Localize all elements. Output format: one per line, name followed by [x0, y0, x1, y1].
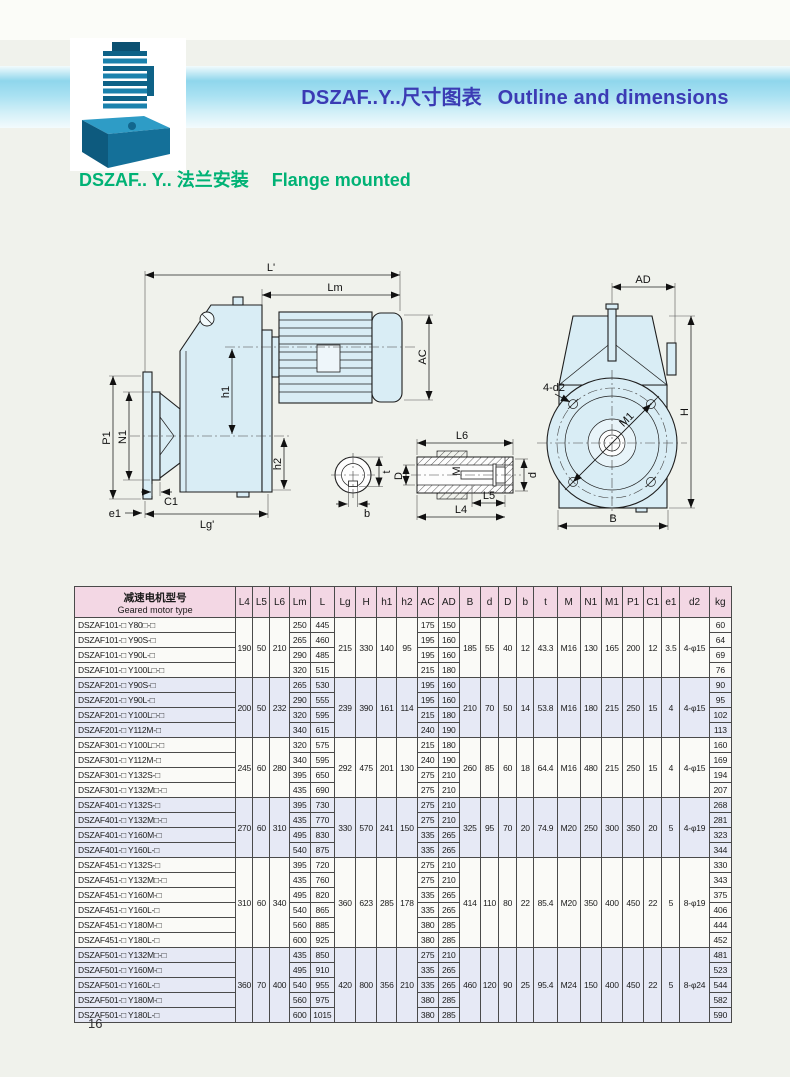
b-cell: 14 — [517, 678, 534, 738]
dim-label-d: d — [527, 472, 539, 478]
B-cell: 460 — [459, 948, 480, 1023]
col-header-AD: AD — [438, 587, 459, 618]
model-cell: DSZAF301-□ Y132S-□ — [75, 768, 236, 783]
h2-cell: 178 — [397, 858, 417, 948]
table-header-row: 减速电机型号 Geared motor type L4 L5 L6 Lm L L… — [75, 587, 732, 618]
kg-cell: 481 — [709, 948, 731, 963]
model-cell: DSZAF401-□ Y160M-□ — [75, 828, 236, 843]
Lm-cell: 320 — [289, 708, 310, 723]
dim-label-b: b — [364, 508, 370, 520]
L5-cell: 60 — [253, 858, 270, 948]
L-cell: 975 — [310, 993, 334, 1008]
model-header-zh: 减速电机型号 — [75, 590, 235, 605]
page-title-en: Outline and dimensions — [498, 87, 729, 109]
model-cell: DSZAF451-□ Y160L-□ — [75, 903, 236, 918]
kg-cell: 95 — [709, 693, 731, 708]
dim-label-L6: L6 — [456, 430, 468, 442]
dim-label-AC: AC — [417, 349, 429, 364]
Lm-cell: 340 — [289, 723, 310, 738]
Lm-cell: 395 — [289, 768, 310, 783]
L-cell: 1015 — [310, 1008, 334, 1023]
d2-cell: 4-φ15 — [680, 738, 709, 798]
col-header-B: B — [459, 587, 480, 618]
product-photo — [70, 38, 186, 171]
L-cell: 595 — [310, 753, 334, 768]
N1-cell: 250 — [580, 798, 601, 858]
Lm-cell: 540 — [289, 903, 310, 918]
model-cell: DSZAF451-□ Y180M-□ — [75, 918, 236, 933]
t-cell: 74.9 — [534, 798, 557, 858]
L4-cell: 270 — [236, 798, 253, 858]
h2-cell: 114 — [397, 678, 417, 738]
e1-cell: 4 — [662, 738, 680, 798]
t-cell: 85.4 — [534, 858, 557, 948]
kg-cell: 160 — [709, 738, 731, 753]
AD-cell: 180 — [438, 708, 459, 723]
L5-cell: 50 — [253, 678, 270, 738]
kg-cell: 64 — [709, 633, 731, 648]
L-cell: 925 — [310, 933, 334, 948]
kg-cell: 323 — [709, 828, 731, 843]
C1-cell: 20 — [644, 798, 662, 858]
kg-cell: 90 — [709, 678, 731, 693]
AC-cell: 335 — [417, 843, 438, 858]
dim-label-B: B — [609, 513, 616, 525]
L6-cell: 280 — [270, 738, 289, 798]
AD-cell: 210 — [438, 948, 459, 963]
M-cell: M16 — [557, 618, 580, 678]
model-header-en: Geared motor type — [75, 605, 235, 615]
model-cell: DSZAF501-□ Y160M-□ — [75, 963, 236, 978]
AD-cell: 160 — [438, 693, 459, 708]
catalog-page: DSZAF..Y..尺寸图表 Outline and dimensions DS… — [0, 0, 790, 1077]
AD-cell: 285 — [438, 918, 459, 933]
AC-cell: 380 — [417, 993, 438, 1008]
table-row: DSZAF501-□ Y132M□-□360704004358504208003… — [75, 948, 732, 963]
kg-cell: 76 — [709, 663, 731, 678]
t-cell: 53.8 — [534, 678, 557, 738]
col-header-L5: L5 — [253, 587, 270, 618]
L4-cell: 245 — [236, 738, 253, 798]
table-row: DSZAF301-□ Y100L□-□245602803205752924752… — [75, 738, 732, 753]
C1-cell: 15 — [644, 738, 662, 798]
b-cell: 18 — [517, 738, 534, 798]
dim-label-Lg-prime: Lg' — [200, 519, 214, 531]
col-header-N1: N1 — [580, 587, 601, 618]
L-cell: 690 — [310, 783, 334, 798]
kg-cell: 375 — [709, 888, 731, 903]
B-cell: 260 — [459, 738, 480, 798]
M-cell: M20 — [557, 858, 580, 948]
dim-label-AD: AD — [635, 274, 650, 286]
M-cell: M20 — [557, 798, 580, 858]
M1-cell: 215 — [601, 738, 622, 798]
dim-label-D: D — [393, 472, 405, 480]
kg-cell: 590 — [709, 1008, 731, 1023]
AD-cell: 285 — [438, 933, 459, 948]
motor-fins — [103, 51, 154, 109]
AC-cell: 335 — [417, 978, 438, 993]
AD-cell: 210 — [438, 813, 459, 828]
e1-cell: 3.5 — [662, 618, 680, 678]
Lm-cell: 265 — [289, 633, 310, 648]
dim-label-L4: L4 — [455, 504, 467, 516]
model-cell: DSZAF501-□ Y160L-□ — [75, 978, 236, 993]
AD-cell: 210 — [438, 783, 459, 798]
d-cell: 120 — [481, 948, 499, 1023]
M1-cell: 300 — [601, 798, 622, 858]
d2-cell: 8-φ19 — [680, 858, 709, 948]
D-cell: 40 — [499, 618, 517, 678]
dimension-table: 减速电机型号 Geared motor type L4 L5 L6 Lm L L… — [74, 586, 732, 1023]
AC-cell: 335 — [417, 828, 438, 843]
kg-cell: 169 — [709, 753, 731, 768]
h2-cell: 210 — [397, 948, 417, 1023]
AD-cell: 210 — [438, 798, 459, 813]
L4-cell: 310 — [236, 858, 253, 948]
kg-cell: 406 — [709, 903, 731, 918]
Lg-cell: 420 — [334, 948, 355, 1023]
AC-cell: 380 — [417, 918, 438, 933]
M-cell: M16 — [557, 678, 580, 738]
kg-cell: 344 — [709, 843, 731, 858]
Lm-cell: 495 — [289, 828, 310, 843]
model-cell: DSZAF451-□ Y132M□-□ — [75, 873, 236, 888]
kg-cell: 69 — [709, 648, 731, 663]
AD-cell: 265 — [438, 978, 459, 993]
col-header-C1: C1 — [644, 587, 662, 618]
Lm-cell: 495 — [289, 963, 310, 978]
kg-cell: 544 — [709, 978, 731, 993]
AD-cell: 160 — [438, 648, 459, 663]
Lm-cell: 540 — [289, 843, 310, 858]
AD-cell: 210 — [438, 768, 459, 783]
L-cell: 760 — [310, 873, 334, 888]
H-cell: 570 — [356, 798, 377, 858]
kg-cell: 343 — [709, 873, 731, 888]
model-cell: DSZAF301-□ Y112M-□ — [75, 753, 236, 768]
AC-cell: 240 — [417, 723, 438, 738]
subtitle-zh: DSZAF.. Y.. 法兰安装 — [79, 170, 249, 190]
gear-motor-image — [70, 38, 186, 171]
page-title: DSZAF..Y..尺寸图表 Outline and dimensions — [285, 81, 745, 110]
AC-cell: 335 — [417, 903, 438, 918]
AC-cell: 275 — [417, 948, 438, 963]
model-cell: DSZAF101-□ Y80□-□ — [75, 618, 236, 633]
col-header-L: L — [310, 587, 334, 618]
subtitle-en: Flange mounted — [272, 170, 411, 190]
N1-cell: 180 — [580, 678, 601, 738]
L-cell: 830 — [310, 828, 334, 843]
H-cell: 623 — [356, 858, 377, 948]
P1-cell: 450 — [623, 858, 644, 948]
Lm-cell: 250 — [289, 618, 310, 633]
AD-cell: 265 — [438, 828, 459, 843]
AC-cell: 275 — [417, 798, 438, 813]
d-cell: 110 — [481, 858, 499, 948]
model-cell: DSZAF101-□ Y90L-□ — [75, 648, 236, 663]
P1-cell: 250 — [623, 678, 644, 738]
L6-cell: 340 — [270, 858, 289, 948]
d2-cell: 4-φ15 — [680, 618, 709, 678]
B-cell: 414 — [459, 858, 480, 948]
kg-cell: 582 — [709, 993, 731, 1008]
Lg-cell: 360 — [334, 858, 355, 948]
b-cell: 25 — [517, 948, 534, 1023]
AD-cell: 160 — [438, 633, 459, 648]
L4-cell: 190 — [236, 618, 253, 678]
L-cell: 485 — [310, 648, 334, 663]
page-number: 16 — [88, 1016, 102, 1031]
L-cell: 910 — [310, 963, 334, 978]
b-cell: 22 — [517, 858, 534, 948]
AD-cell: 190 — [438, 723, 459, 738]
AC-cell: 175 — [417, 618, 438, 633]
M1-cell: 400 — [601, 948, 622, 1023]
AC-cell: 380 — [417, 1008, 438, 1023]
d2-cell: 4-φ19 — [680, 798, 709, 858]
h2-cell: 150 — [397, 798, 417, 858]
AD-cell: 180 — [438, 663, 459, 678]
B-cell: 210 — [459, 678, 480, 738]
AC-cell: 195 — [417, 648, 438, 663]
L-cell: 515 — [310, 663, 334, 678]
h2-cell: 130 — [397, 738, 417, 798]
AD-cell: 285 — [438, 993, 459, 1008]
L-cell: 770 — [310, 813, 334, 828]
L6-cell: 210 — [270, 618, 289, 678]
D-cell: 70 — [499, 798, 517, 858]
L-cell: 875 — [310, 843, 334, 858]
col-header-kg: kg — [709, 587, 731, 618]
d-cell: 70 — [481, 678, 499, 738]
AC-cell: 335 — [417, 888, 438, 903]
B-cell: 185 — [459, 618, 480, 678]
col-header-M: M — [557, 587, 580, 618]
P1-cell: 250 — [623, 738, 644, 798]
L5-cell: 50 — [253, 618, 270, 678]
t-cell: 64.4 — [534, 738, 557, 798]
table-row: DSZAF401-□ Y132S-□2706031039573033057024… — [75, 798, 732, 813]
Lm-cell: 265 — [289, 678, 310, 693]
model-cell: DSZAF401-□ Y132M□-□ — [75, 813, 236, 828]
model-cell: DSZAF201-□ Y90L-□ — [75, 693, 236, 708]
h1-cell: 161 — [377, 678, 397, 738]
dim-label-H: H — [679, 408, 691, 416]
L6-cell: 400 — [270, 948, 289, 1023]
model-cell: DSZAF101-□ Y90S-□ — [75, 633, 236, 648]
col-header-b: b — [517, 587, 534, 618]
e1-cell: 5 — [662, 798, 680, 858]
kg-cell: 330 — [709, 858, 731, 873]
b-cell: 12 — [517, 618, 534, 678]
AC-cell: 240 — [417, 753, 438, 768]
col-header-D: D — [499, 587, 517, 618]
AD-cell: 190 — [438, 753, 459, 768]
Lm-cell: 290 — [289, 693, 310, 708]
model-cell: DSZAF201-□ Y112M-□ — [75, 723, 236, 738]
kg-cell: 523 — [709, 963, 731, 978]
L-cell: 595 — [310, 708, 334, 723]
h2-cell: 95 — [397, 618, 417, 678]
AD-cell: 265 — [438, 963, 459, 978]
Lm-cell: 340 — [289, 753, 310, 768]
col-header-e1: e1 — [662, 587, 680, 618]
M-cell: M24 — [557, 948, 580, 1023]
Lm-cell: 320 — [289, 738, 310, 753]
Lm-cell: 560 — [289, 993, 310, 1008]
M1-cell: 215 — [601, 678, 622, 738]
kg-cell: 268 — [709, 798, 731, 813]
N1-cell: 130 — [580, 618, 601, 678]
H-cell: 800 — [356, 948, 377, 1023]
N1-cell: 480 — [580, 738, 601, 798]
model-cell: DSZAF451-□ Y132S-□ — [75, 858, 236, 873]
L-cell: 955 — [310, 978, 334, 993]
M1-cell: 165 — [601, 618, 622, 678]
dimension-drawing: L' Lm AC h1 h2 — [85, 245, 765, 545]
AC-cell: 275 — [417, 768, 438, 783]
L6-cell: 310 — [270, 798, 289, 858]
B-cell: 325 — [459, 798, 480, 858]
AD-cell: 265 — [438, 903, 459, 918]
Lg-cell: 239 — [334, 678, 355, 738]
Lm-cell: 435 — [289, 783, 310, 798]
Lg-cell: 330 — [334, 798, 355, 858]
Lm-cell: 290 — [289, 648, 310, 663]
AC-cell: 275 — [417, 873, 438, 888]
dim-label-N1: N1 — [117, 430, 129, 444]
e1-cell: 5 — [662, 948, 680, 1023]
kg-cell: 444 — [709, 918, 731, 933]
terminal-box — [317, 345, 340, 372]
Lm-cell: 395 — [289, 798, 310, 813]
AD-cell: 210 — [438, 873, 459, 888]
Lg-cell: 215 — [334, 618, 355, 678]
page-title-zh: DSZAF..Y..尺寸图表 — [301, 87, 482, 109]
M1-cell: 400 — [601, 858, 622, 948]
L6-cell: 232 — [270, 678, 289, 738]
kg-cell: 207 — [709, 783, 731, 798]
t-cell: 43.3 — [534, 618, 557, 678]
L-cell: 530 — [310, 678, 334, 693]
Lm-cell: 435 — [289, 813, 310, 828]
N1-cell: 150 — [580, 948, 601, 1023]
Lm-cell: 320 — [289, 663, 310, 678]
kg-cell: 113 — [709, 723, 731, 738]
H-cell: 390 — [356, 678, 377, 738]
AC-cell: 275 — [417, 783, 438, 798]
L4-cell: 200 — [236, 678, 253, 738]
model-cell: DSZAF101-□ Y100L□-□ — [75, 663, 236, 678]
AC-cell: 215 — [417, 708, 438, 723]
h1-cell: 285 — [377, 858, 397, 948]
L-cell: 730 — [310, 798, 334, 813]
h1-cell: 201 — [377, 738, 397, 798]
Lm-cell: 435 — [289, 873, 310, 888]
L-cell: 445 — [310, 618, 334, 633]
h1-cell: 241 — [377, 798, 397, 858]
L4-cell: 360 — [236, 948, 253, 1023]
Lm-cell: 540 — [289, 978, 310, 993]
dim-label-P1: P1 — [101, 431, 113, 444]
col-header-P1: P1 — [623, 587, 644, 618]
AC-cell: 195 — [417, 693, 438, 708]
h1-cell: 356 — [377, 948, 397, 1023]
AC-cell: 195 — [417, 678, 438, 693]
dim-label-h1: h1 — [220, 386, 232, 398]
t-cell: 95.4 — [534, 948, 557, 1023]
col-header-h2: h2 — [397, 587, 417, 618]
AD-cell: 265 — [438, 888, 459, 903]
col-header-d2: d2 — [680, 587, 709, 618]
dim-label-h2: h2 — [272, 458, 284, 470]
model-cell: DSZAF301-□ Y100L□-□ — [75, 738, 236, 753]
e1-cell: 5 — [662, 858, 680, 948]
col-header-L4: L4 — [236, 587, 253, 618]
col-header-h1: h1 — [377, 587, 397, 618]
kg-cell: 194 — [709, 768, 731, 783]
D-cell: 50 — [499, 678, 517, 738]
model-cell: DSZAF501-□ Y132M□-□ — [75, 948, 236, 963]
L-cell: 720 — [310, 858, 334, 873]
AC-cell: 275 — [417, 813, 438, 828]
L-cell: 460 — [310, 633, 334, 648]
H-cell: 330 — [356, 618, 377, 678]
kg-cell: 60 — [709, 618, 731, 633]
model-cell: DSZAF501-□ Y180M-□ — [75, 993, 236, 1008]
L5-cell: 60 — [253, 738, 270, 798]
AD-cell: 285 — [438, 1008, 459, 1023]
dim-label-L-prime: L' — [267, 262, 275, 274]
L-cell: 885 — [310, 918, 334, 933]
P1-cell: 200 — [623, 618, 644, 678]
model-cell: DSZAF301-□ Y132M□-□ — [75, 783, 236, 798]
AC-cell: 195 — [417, 633, 438, 648]
col-header-t: t — [534, 587, 557, 618]
dim-label-C1: C1 — [164, 496, 178, 508]
e1-cell: 4 — [662, 678, 680, 738]
L-cell: 650 — [310, 768, 334, 783]
col-header-H: H — [356, 587, 377, 618]
dim-label-e1: e1 — [109, 508, 121, 520]
dim-label-L5: L5 — [483, 490, 495, 502]
b-cell: 20 — [517, 798, 534, 858]
Lm-cell: 600 — [289, 933, 310, 948]
d-cell: 85 — [481, 738, 499, 798]
dim-label-M: M — [451, 466, 463, 475]
P1-cell: 450 — [623, 948, 644, 1023]
AD-cell: 180 — [438, 738, 459, 753]
M-cell: M16 — [557, 738, 580, 798]
Lg-cell: 292 — [334, 738, 355, 798]
AC-cell: 215 — [417, 738, 438, 753]
d2-cell: 4-φ15 — [680, 678, 709, 738]
col-header-AC: AC — [417, 587, 438, 618]
Lm-cell: 395 — [289, 858, 310, 873]
motor-rear-cap — [372, 313, 402, 402]
kg-cell: 281 — [709, 813, 731, 828]
kg-cell: 102 — [709, 708, 731, 723]
D-cell: 90 — [499, 948, 517, 1023]
AC-cell: 275 — [417, 858, 438, 873]
AD-cell: 210 — [438, 858, 459, 873]
col-header-d: d — [481, 587, 499, 618]
col-header-M1: M1 — [601, 587, 622, 618]
d-cell: 55 — [481, 618, 499, 678]
C1-cell: 15 — [644, 678, 662, 738]
col-header-Lm: Lm — [289, 587, 310, 618]
